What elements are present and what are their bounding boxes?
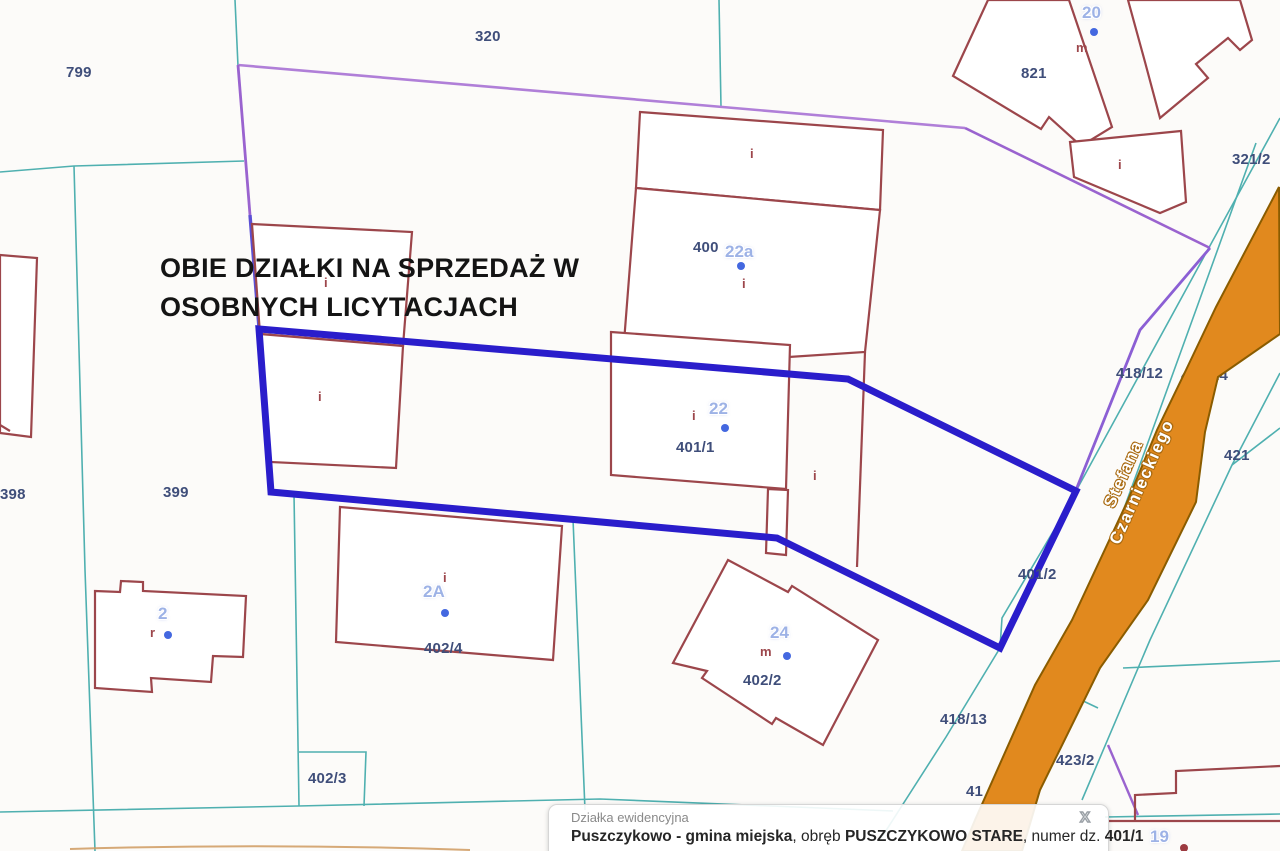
use-mark-i-400-top: i [750, 146, 754, 161]
parcel-label-421: 421 [1224, 447, 1250, 464]
building-outlines [0, 0, 1280, 821]
use-mark-i-building-b: i [318, 389, 322, 404]
parcel-label-320: 320 [475, 28, 501, 45]
popup-numer-label: , numer dz. [1023, 828, 1105, 845]
house-number-2a: 2A [423, 582, 445, 602]
parcel-label-402-2: 402/2 [743, 672, 782, 689]
popup-municipality: Puszczykowo - gmina miejska [571, 828, 792, 845]
use-mark-i-401-2: i [813, 468, 817, 483]
use-mark-m-24: m [760, 644, 772, 659]
popup-obreb-value: PUSZCZYKOWO STARE [845, 828, 1023, 845]
house-number-20: 20 [1082, 3, 1101, 23]
parcel-label-401-2: 401/2 [1018, 566, 1057, 583]
house-location-dot-19 [1180, 844, 1188, 851]
map-layers [0, 0, 1280, 851]
house-location-dot-2a [441, 609, 449, 617]
auction-annotation: OBIE DZIAŁKI NA SPRZEDAŻ W OSOBNYCH LICY… [160, 249, 579, 327]
annotation-line-1: OBIE DZIAŁKI NA SPRZEDAŻ W [160, 249, 579, 288]
house-number-19: 19 [1150, 827, 1169, 847]
use-mark-i-20-annex: i [1118, 157, 1122, 172]
parcel-label-321-2: 321/2 [1232, 151, 1271, 168]
parcel-label-418-13: 418/13 [940, 711, 987, 728]
parcel-label-401-1: 401/1 [676, 439, 715, 456]
parcel-info-popup: Działka ewidencyjna Puszczykowo - gmina … [548, 804, 1109, 851]
parcel-label-400: 400 [693, 239, 719, 256]
house-location-dot-22a [737, 262, 745, 270]
house-number-2: 2 [158, 604, 167, 624]
house-location-dot-22 [721, 424, 729, 432]
house-location-dot-24 [783, 652, 791, 660]
parcel-label-821: 821 [1021, 65, 1047, 82]
house-number-22a: 22a [725, 242, 753, 262]
popup-parcel-details: Puszczykowo - gmina miejska, obręb PUSZC… [571, 828, 1144, 846]
parcel-label-799: 799 [66, 64, 92, 81]
cadastral-map-canvas[interactable]: 418/24 41 [0, 0, 1280, 851]
parcel-label-418-12: 418/12 [1116, 365, 1163, 382]
use-mark-m-20: m [1076, 40, 1088, 55]
parcel-label-402-4: 402/4 [424, 640, 463, 657]
popup-numer-value: 401/1 [1105, 828, 1144, 845]
parcel-label-402-3: 402/3 [308, 770, 347, 787]
house-number-24: 24 [770, 623, 789, 643]
house-location-dot-20 [1090, 28, 1098, 36]
use-mark-i-2a: i [443, 570, 447, 585]
use-mark-i-22a: i [742, 276, 746, 291]
close-icon[interactable]: X [1076, 809, 1094, 827]
use-mark-r-2: r [150, 625, 155, 640]
use-mark-i-22: i [692, 408, 696, 423]
bottom-edge-feature [70, 846, 470, 850]
annotation-line-2: OSOBNYCH LICYTACJACH [160, 288, 579, 327]
parcel-label-423-2: 423/2 [1056, 752, 1095, 769]
popup-obreb-label: , obręb [792, 828, 845, 845]
popup-title: Działka ewidencyjna [571, 810, 689, 825]
house-number-22: 22 [709, 399, 728, 419]
parcel-label-398: 398 [0, 486, 26, 503]
house-location-dot-2 [164, 631, 172, 639]
parcel-label-399: 399 [163, 484, 189, 501]
